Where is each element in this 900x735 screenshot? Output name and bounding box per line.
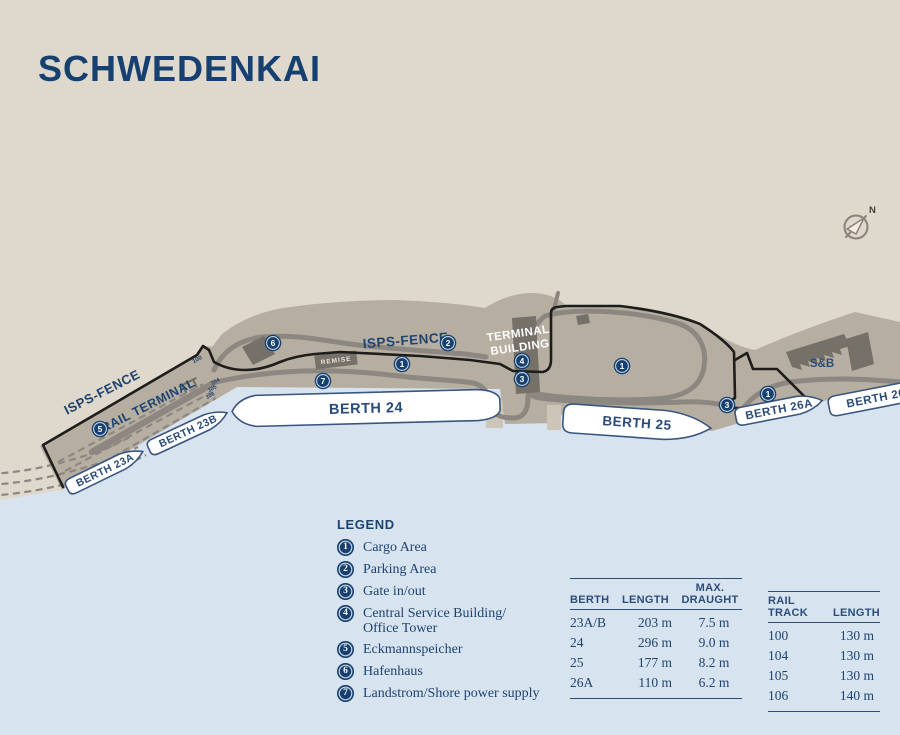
berth-24-ship: BERTH 24 bbox=[232, 389, 501, 427]
quay-patch-right bbox=[547, 405, 561, 430]
legend-item-cargo-area: 1 Cargo Area bbox=[337, 539, 567, 556]
legend-label-5: Eckmannspeicher bbox=[363, 642, 463, 657]
legend-label-7: Landstrom/Shore power supply bbox=[363, 686, 540, 701]
marker-shore-power: 7 bbox=[315, 373, 332, 390]
svg-text:7: 7 bbox=[321, 376, 326, 386]
berth-table-rows: 23A/B 203 m 7.5 m 24 296 m 9.0 m 25 177 … bbox=[570, 610, 742, 698]
rail-track-table: RAIL TRACK LENGTH 100 130 m 104 130 m 10… bbox=[768, 591, 880, 712]
marker-cargo-area-center: 1 bbox=[614, 358, 631, 375]
marker-cargo-area-east: 1 bbox=[760, 386, 777, 403]
legend-label-2: Parking Area bbox=[363, 562, 436, 577]
svg-text:3: 3 bbox=[725, 400, 730, 410]
berth-table: BERTH LENGTH MAX. DRAUGHT 23A/B 203 m 7.… bbox=[570, 578, 742, 699]
berth-table-header-length: LENGTH bbox=[622, 594, 678, 606]
legend-item-central-service-building: 4 Central Service Building/Office Tower bbox=[337, 605, 567, 636]
legend-label-4: Central Service Building/ bbox=[363, 606, 506, 621]
legend-badge-1: 1 bbox=[337, 539, 354, 556]
table-row: 26A 110 m 6.2 m bbox=[570, 673, 742, 693]
marker-gate-west: 3 bbox=[514, 371, 531, 388]
rail-table-bottom-rule bbox=[768, 711, 880, 712]
marker-cargo-area-west: 1 bbox=[394, 356, 411, 373]
rail-table-rows: 100 130 m 104 130 m 105 130 m 106 140 m bbox=[768, 623, 880, 711]
table-row: 23A/B 203 m 7.5 m bbox=[570, 613, 742, 633]
compass-north-label: N bbox=[869, 205, 876, 216]
legend-item-hafenhaus: 6 Hafenhaus bbox=[337, 663, 567, 680]
rail-table-header-length: LENGTH bbox=[822, 607, 880, 619]
svg-text:6: 6 bbox=[271, 338, 276, 348]
legend-badge-2: 2 bbox=[337, 561, 354, 578]
berth-table-header-draught: MAX. DRAUGHT bbox=[678, 582, 742, 606]
marker-gate-east: 3 bbox=[719, 397, 736, 414]
berth-24-label: BERTH 24 bbox=[329, 400, 404, 418]
rail-table-header-track: RAIL TRACK bbox=[768, 595, 822, 619]
marker-parking-area: 2 bbox=[440, 335, 457, 352]
svg-text:1: 1 bbox=[766, 389, 771, 399]
legend-badge-3: 3 bbox=[337, 583, 354, 600]
legend-label-6: Hafenhaus bbox=[363, 664, 423, 679]
svg-text:3: 3 bbox=[520, 374, 525, 384]
svg-text:1: 1 bbox=[400, 359, 405, 369]
legend-item-eckmannspeicher: 5 Eckmannspeicher bbox=[337, 641, 567, 658]
sb-label: S&B bbox=[810, 358, 834, 370]
berth-table-header: BERTH LENGTH MAX. DRAUGHT bbox=[570, 579, 742, 609]
svg-text:4: 4 bbox=[520, 356, 525, 366]
page-title: SCHWEDENKAI bbox=[38, 48, 321, 90]
legend-heading: LEGEND bbox=[337, 517, 567, 532]
table-row: 25 177 m 8.2 m bbox=[570, 653, 742, 673]
legend-badge-6: 6 bbox=[337, 663, 354, 680]
legend-item-shore-power: 7 Landstrom/Shore power supply bbox=[337, 685, 567, 702]
legend-label-3: Gate in/out bbox=[363, 584, 426, 599]
schwedenkai-port-map-page: REMISE BERTH 23A BERTH 23B BERTH 24 BERT… bbox=[0, 0, 900, 735]
legend-item-parking-area: 2 Parking Area bbox=[337, 561, 567, 578]
legend-panel: LEGEND 1 Cargo Area 2 Parking Area 3 Gat… bbox=[337, 517, 567, 707]
table-row: 105 130 m bbox=[768, 666, 880, 686]
legend-item-gate: 3 Gate in/out bbox=[337, 583, 567, 600]
svg-text:2: 2 bbox=[446, 338, 451, 348]
table-row: 106 140 m bbox=[768, 686, 880, 706]
table-row: 104 130 m bbox=[768, 646, 880, 666]
svg-text:5: 5 bbox=[98, 424, 103, 434]
berth-table-header-berth: BERTH bbox=[570, 594, 622, 606]
legend-label-1: Cargo Area bbox=[363, 540, 427, 555]
legend-badge-5: 5 bbox=[337, 641, 354, 658]
table-row: 100 130 m bbox=[768, 626, 880, 646]
legend-badge-7: 7 bbox=[337, 685, 354, 702]
rail-table-header: RAIL TRACK LENGTH bbox=[768, 592, 880, 622]
marker-hafenhaus: 6 bbox=[265, 335, 282, 352]
berth-table-bottom-rule bbox=[570, 698, 742, 699]
marker-eckmannspeicher: 5 bbox=[92, 421, 109, 438]
legend-badge-4: 4 bbox=[337, 605, 354, 622]
marker-central-service-building: 4 bbox=[514, 353, 531, 370]
table-row: 24 296 m 9.0 m bbox=[570, 633, 742, 653]
svg-text:1: 1 bbox=[620, 361, 625, 371]
